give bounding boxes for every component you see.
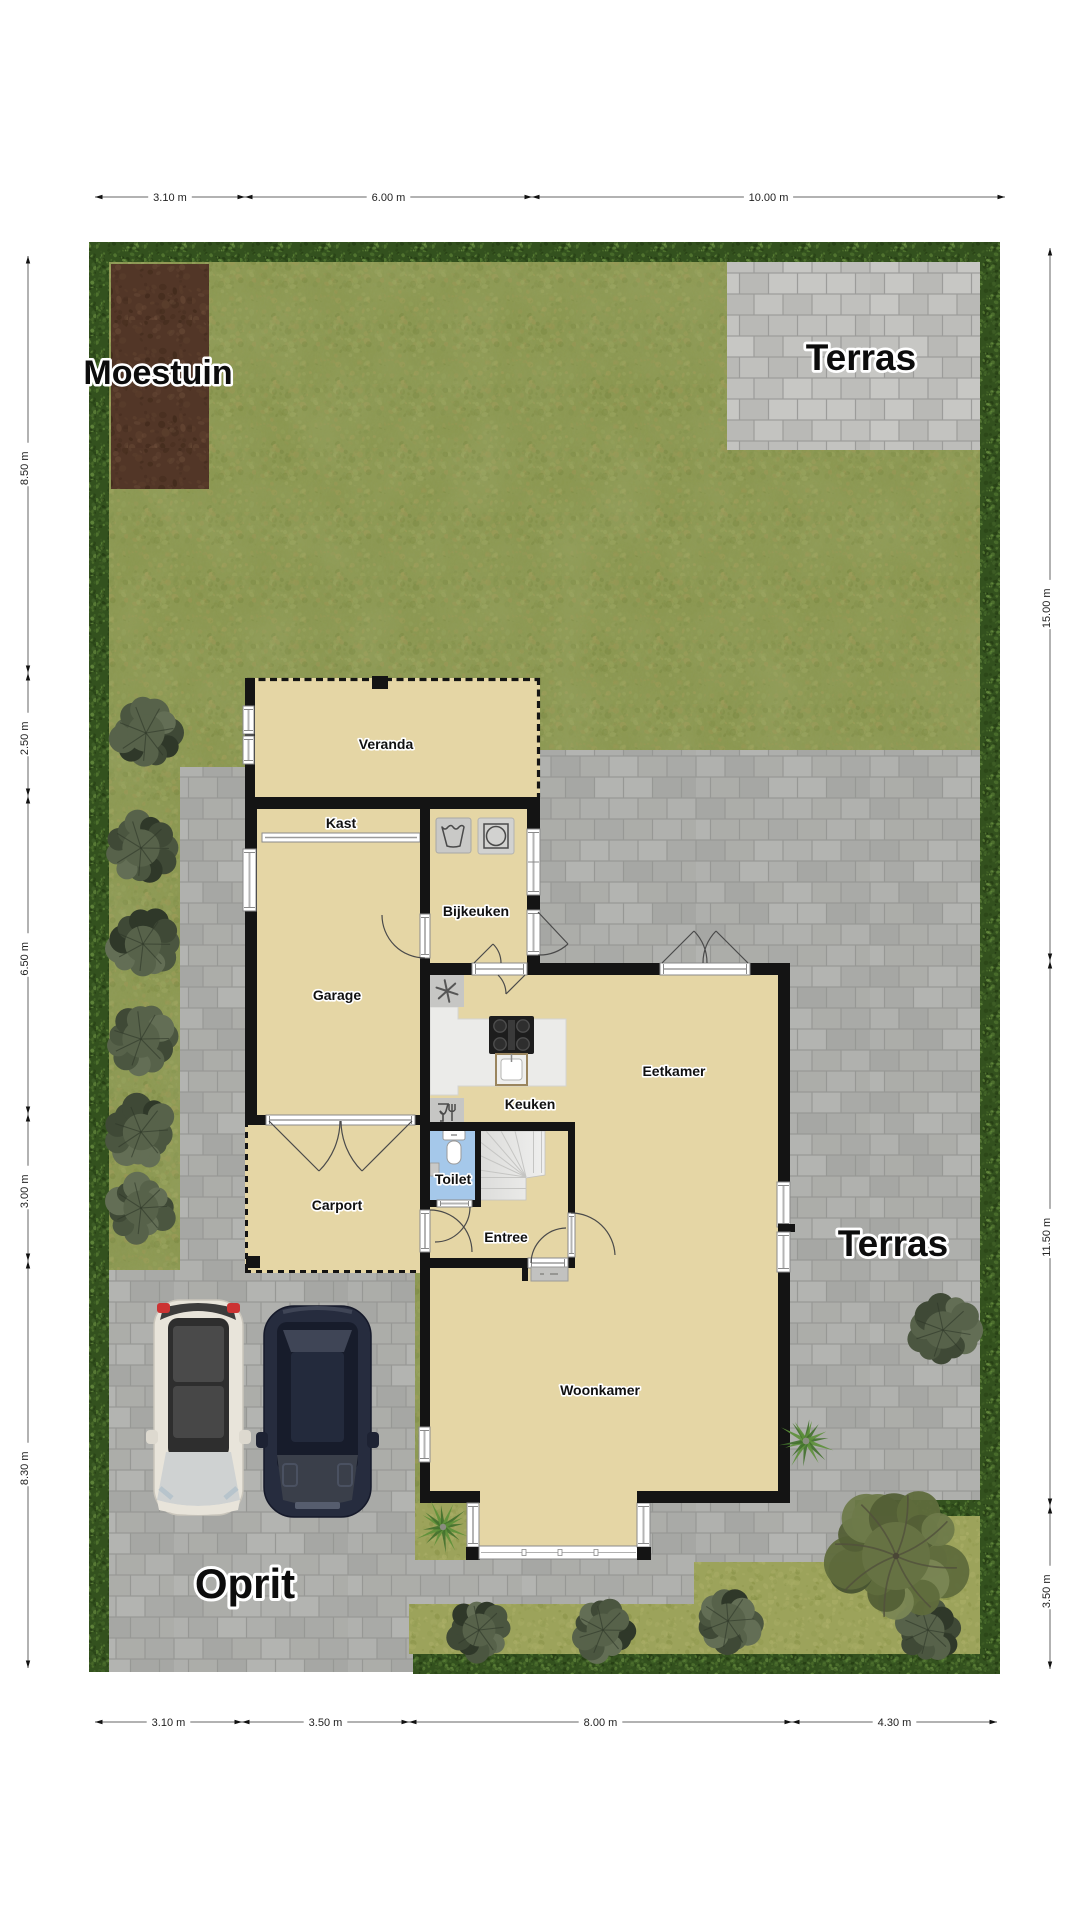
svg-text:8.50 m: 8.50 m [19, 451, 31, 485]
svg-text:Terras: Terras [838, 1223, 948, 1264]
svg-text:Keuken: Keuken [505, 1096, 556, 1112]
svg-text:Moestuin: Moestuin [83, 354, 232, 392]
svg-text:6.00 m: 6.00 m [372, 192, 406, 204]
svg-text:Woonkamer: Woonkamer [560, 1382, 640, 1398]
svg-text:3.50 m: 3.50 m [1041, 1574, 1053, 1608]
svg-text:2.50 m: 2.50 m [19, 721, 31, 755]
svg-text:6.50 m: 6.50 m [19, 942, 31, 976]
svg-text:3.10 m: 3.10 m [152, 1717, 186, 1729]
svg-text:3.00 m: 3.00 m [19, 1174, 31, 1208]
svg-text:10.00 m: 10.00 m [749, 192, 789, 204]
svg-text:8.30 m: 8.30 m [19, 1451, 31, 1485]
svg-text:Garage: Garage [313, 987, 361, 1003]
svg-text:4.30 m: 4.30 m [878, 1717, 912, 1729]
svg-text:8.00 m: 8.00 m [584, 1717, 618, 1729]
svg-text:Bijkeuken: Bijkeuken [443, 903, 509, 919]
svg-text:Oprit: Oprit [195, 1560, 295, 1607]
svg-text:Entree: Entree [484, 1229, 528, 1245]
svg-text:Toilet: Toilet [435, 1171, 472, 1187]
svg-text:Carport: Carport [312, 1197, 363, 1213]
svg-text:11.50 m: 11.50 m [1041, 1218, 1053, 1257]
svg-text:Veranda: Veranda [359, 736, 414, 752]
svg-text:3.50 m: 3.50 m [309, 1717, 343, 1729]
svg-text:Eetkamer: Eetkamer [642, 1063, 706, 1079]
svg-text:15.00 m: 15.00 m [1041, 588, 1053, 628]
svg-text:Terras: Terras [806, 337, 916, 378]
svg-text:3.10 m: 3.10 m [153, 192, 187, 204]
svg-text:Kast: Kast [326, 815, 357, 831]
